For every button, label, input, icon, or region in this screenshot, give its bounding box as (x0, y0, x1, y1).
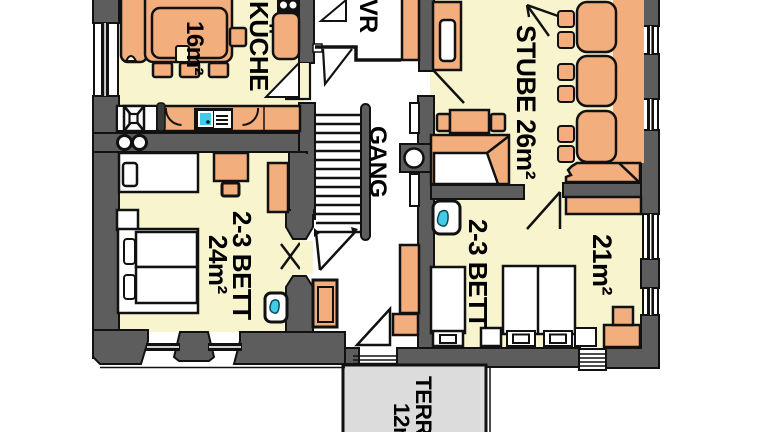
svg-text:GANG: GANG (364, 126, 391, 198)
svg-text:21m²: 21m² (587, 234, 617, 296)
svg-text:VR: VR (354, 0, 382, 33)
svg-text:12m²: 12m² (389, 403, 414, 432)
svg-text:2-3 BETT: 2-3 BETT (463, 219, 493, 328)
svg-text:KÜCHE: KÜCHE (244, 1, 274, 91)
svg-text:STUBE 26m²: STUBE 26m² (511, 25, 541, 180)
svg-text:16m²: 16m² (181, 21, 208, 76)
svg-text:24m²: 24m² (203, 235, 233, 295)
